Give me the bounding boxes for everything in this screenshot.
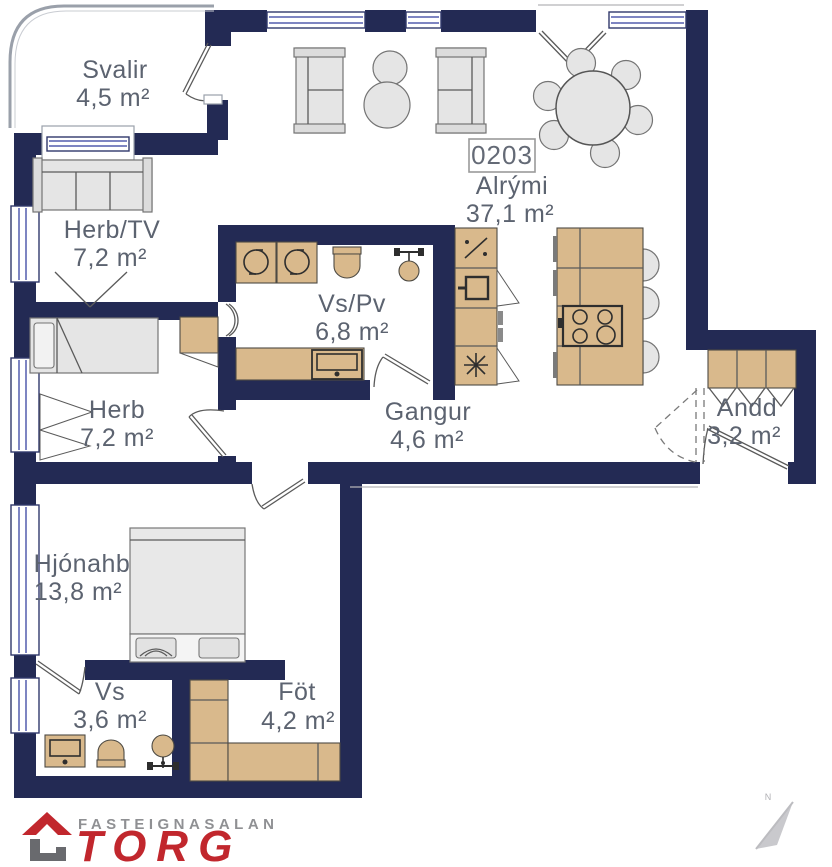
room-andd: Andd 3,2 m² xyxy=(707,350,796,450)
kitchen-island xyxy=(553,228,659,385)
unit-number: 0203 xyxy=(471,140,533,170)
floorplan-canvas: 0203 Alrými 37,1 m² Herb/TV 7,2 m² xyxy=(0,0,832,867)
room-name-svalir: Svalir xyxy=(82,56,148,84)
room-name-fot: Föt xyxy=(278,678,316,706)
kitchen-cabinets xyxy=(455,228,519,385)
room-area-herb-tv: 7,2 m² xyxy=(73,244,147,272)
balcony-door xyxy=(183,43,222,104)
side-table xyxy=(364,82,410,128)
single-bed xyxy=(30,318,158,373)
room-name-hjonahb: Hjónahb xyxy=(34,550,131,578)
bar-stool xyxy=(643,287,659,319)
sofa xyxy=(33,158,152,212)
room-name-gangur: Gangur xyxy=(385,398,471,426)
window xyxy=(609,12,686,28)
room-area-fot: 4,2 m² xyxy=(261,707,335,735)
room-name-alrymi: Alrými xyxy=(476,172,548,200)
stove-icon xyxy=(558,306,622,346)
window xyxy=(267,12,365,28)
room-area-herb: 7,2 m² xyxy=(80,424,154,452)
washing-machine xyxy=(277,242,317,283)
dining-table xyxy=(556,71,630,145)
room-vs: Vs 3,6 m² xyxy=(45,678,179,770)
room-name-herb-tv: Herb/TV xyxy=(64,216,161,244)
room-name-herb: Herb xyxy=(89,396,145,424)
room-area-alrymi: 37,1 m² xyxy=(466,200,554,228)
window xyxy=(11,206,39,282)
sofa xyxy=(294,48,345,133)
door-herb xyxy=(189,410,226,457)
room-area-hjonahb: 13,8 m² xyxy=(34,578,122,606)
logo-base-icon xyxy=(30,839,66,861)
freezer-icon xyxy=(464,353,488,377)
room-name-andd: Andd xyxy=(717,394,777,422)
double-bed xyxy=(130,528,245,662)
sofa xyxy=(436,48,486,133)
north-arrow-icon: N xyxy=(756,792,793,849)
cabinet-door-mark xyxy=(497,270,519,306)
wall-opening-arc xyxy=(229,304,238,336)
room-name-vs-pv: Vs/Pv xyxy=(318,290,386,318)
toilet xyxy=(333,247,361,278)
window xyxy=(42,126,134,160)
room-area-gangur: 4,6 m² xyxy=(390,426,464,454)
logo-roof-icon xyxy=(22,812,72,835)
room-name-vs: Vs xyxy=(95,678,125,706)
bar-stool xyxy=(643,341,659,373)
washing-machine xyxy=(236,242,276,283)
window xyxy=(11,678,39,733)
room-hjonahb: Hjónahb 13,8 m² xyxy=(34,528,245,662)
room-area-vs: 3,6 m² xyxy=(73,706,147,734)
door-hjonahb xyxy=(252,479,305,509)
cabinet-door-mark xyxy=(497,348,519,384)
bar-stool xyxy=(643,249,659,281)
room-gangur: Gangur 4,6 m² xyxy=(385,398,471,454)
room-vs-pv: Vs/Pv 6,8 m² xyxy=(236,242,424,380)
toilet xyxy=(97,740,125,767)
window xyxy=(406,12,441,28)
vanity-sink xyxy=(236,348,364,380)
opening-mark xyxy=(55,272,90,307)
pillow xyxy=(199,638,239,658)
room-area-andd: 3,2 m² xyxy=(707,422,781,450)
sink-cabinet xyxy=(45,735,85,767)
logo-brand: TORG xyxy=(76,822,242,867)
door-vspv xyxy=(374,354,430,387)
pocket-door-dashed xyxy=(655,388,704,462)
north-label: N xyxy=(765,792,772,802)
room-herb: Herb 7,2 m² xyxy=(30,317,218,452)
room-area-vs-pv: 6,8 m² xyxy=(315,318,389,346)
dining-set xyxy=(534,49,653,168)
agency-logo: FASTEIGNASALAN TORG xyxy=(22,812,279,867)
desk xyxy=(180,317,218,367)
room-area-svalir: 4,5 m² xyxy=(76,84,150,112)
room-herb-tv: Herb/TV 7,2 m² xyxy=(33,158,160,272)
side-table xyxy=(373,51,407,85)
door-vs xyxy=(36,661,85,694)
room-fot: Föt 4,2 m² xyxy=(190,678,340,781)
floorplan-drawing: 0203 Alrými 37,1 m² Herb/TV 7,2 m² xyxy=(0,0,832,867)
shower-icon xyxy=(394,248,424,281)
